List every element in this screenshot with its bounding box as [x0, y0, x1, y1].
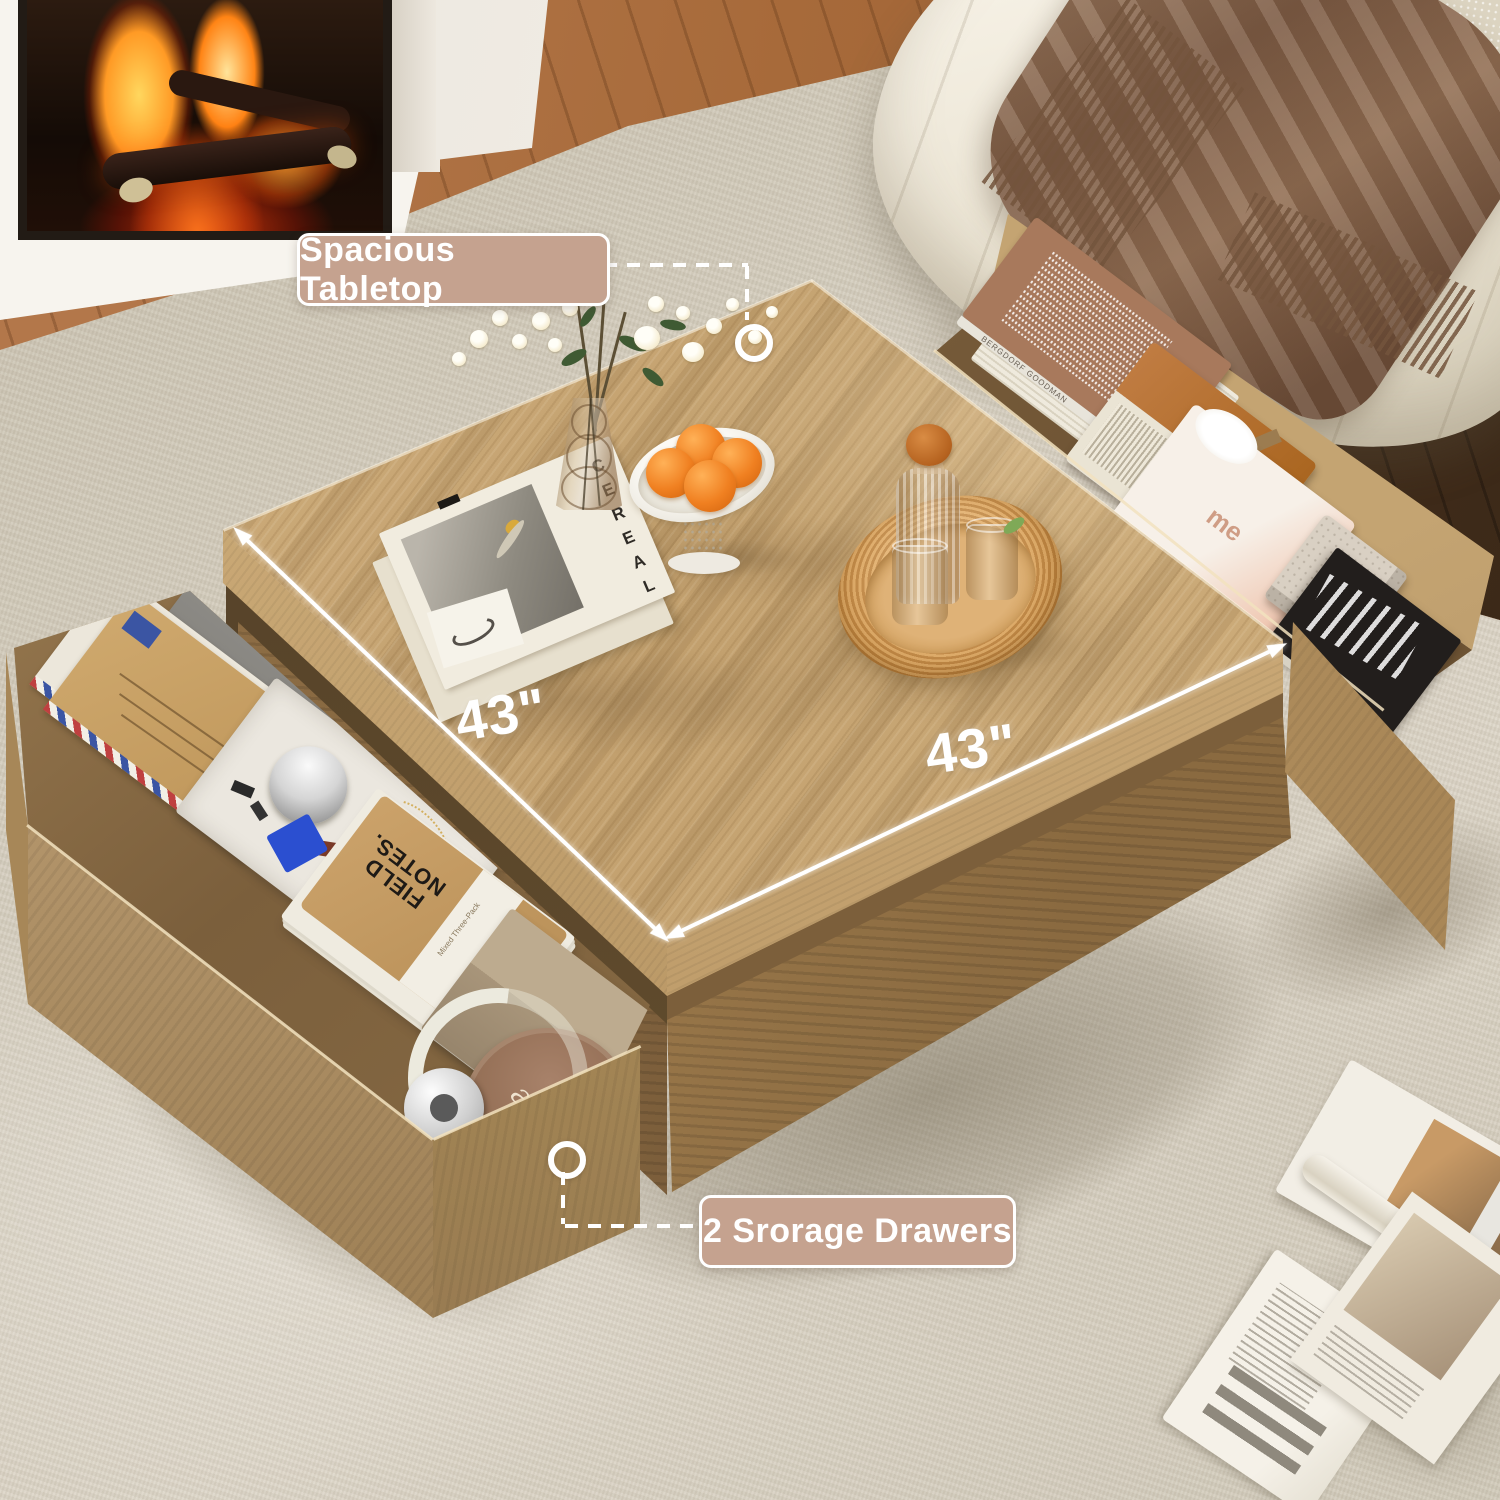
- glass-rim: [892, 538, 948, 554]
- blossom: [676, 306, 690, 320]
- blossom: [648, 296, 664, 312]
- callout-dash-line: [561, 1172, 565, 1224]
- callout-dash-line: [565, 1224, 698, 1228]
- white-card: [427, 588, 524, 668]
- callout-dash-line: [604, 263, 748, 267]
- par-avion-tag: [121, 611, 161, 649]
- earcup-center: [430, 1094, 458, 1122]
- blossom: [470, 330, 488, 348]
- dimension-text-right: 43": [921, 710, 1021, 787]
- blossom: [548, 338, 562, 352]
- blossom: [492, 310, 508, 326]
- vase-ring: [561, 466, 617, 510]
- blossom: [452, 352, 466, 366]
- blossom: [726, 298, 739, 311]
- drawers-callout-text: 2 Srorage Drawers: [703, 1212, 1012, 1251]
- notebook-band-text: Mixed Three-Pack: [436, 901, 482, 958]
- small-item: [250, 801, 268, 822]
- rose: [682, 342, 704, 362]
- address-line: [119, 673, 227, 749]
- fruit-stand-base: [668, 552, 740, 574]
- eyeglasses: [448, 613, 498, 652]
- tissue-box-text: me: [1200, 501, 1249, 548]
- callout-ring-marker: [735, 324, 773, 362]
- rose: [634, 326, 660, 350]
- fire-log: [166, 68, 352, 135]
- bottle-wood-cap: [906, 424, 952, 466]
- blossom: [532, 312, 550, 330]
- callout-dash-line: [745, 266, 749, 320]
- orange-fruit: [684, 460, 736, 512]
- blossom: [766, 306, 778, 318]
- blossom: [512, 334, 527, 349]
- callout-ring-marker: [548, 1141, 586, 1179]
- drinking-glass: [966, 524, 1018, 600]
- fireplace-wall-gap: [392, 0, 440, 172]
- blossom: [706, 318, 722, 334]
- tabletop-callout-text: Spacious Tabletop: [300, 231, 607, 309]
- drinking-glass: [892, 545, 948, 625]
- fireplace-firebox: [18, 0, 392, 240]
- product-photo-scene: Mixed Three-Pack FIELD NOTES. nt oine BE…: [0, 0, 1500, 1500]
- drawers-callout-label: 2 Srorage Drawers: [699, 1195, 1016, 1268]
- notebook-title: FIELD NOTES.: [347, 825, 455, 922]
- tabletop-callout-label: Spacious Tabletop: [297, 233, 610, 306]
- small-item: [231, 780, 256, 799]
